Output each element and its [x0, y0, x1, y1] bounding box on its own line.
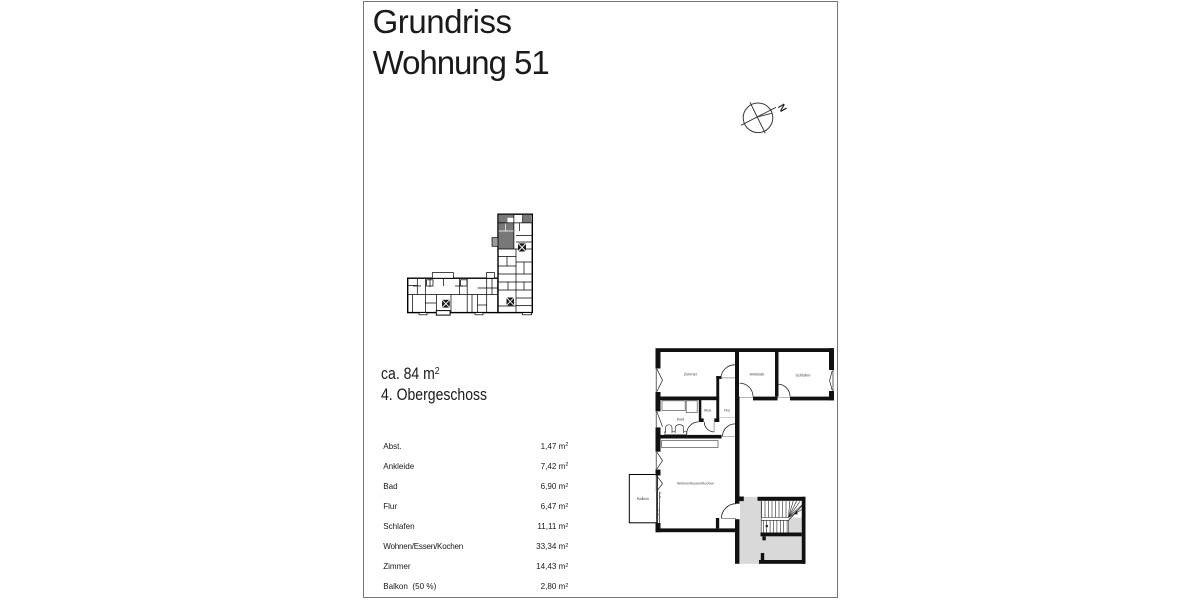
- svg-text:Abst.: Abst.: [704, 409, 712, 413]
- svg-text:Flur: Flur: [724, 409, 731, 413]
- svg-text:Balkon: Balkon: [637, 496, 649, 501]
- svg-text:Zimmer: Zimmer: [684, 371, 698, 376]
- svg-text:Wohnen/Essen/Kochen: Wohnen/Essen/Kochen: [677, 482, 714, 486]
- svg-text:Ankleide: Ankleide: [750, 372, 765, 377]
- svg-text:Schlafen: Schlafen: [795, 373, 810, 378]
- svg-text:N: N: [775, 102, 788, 114]
- svg-text:Bad: Bad: [677, 416, 684, 421]
